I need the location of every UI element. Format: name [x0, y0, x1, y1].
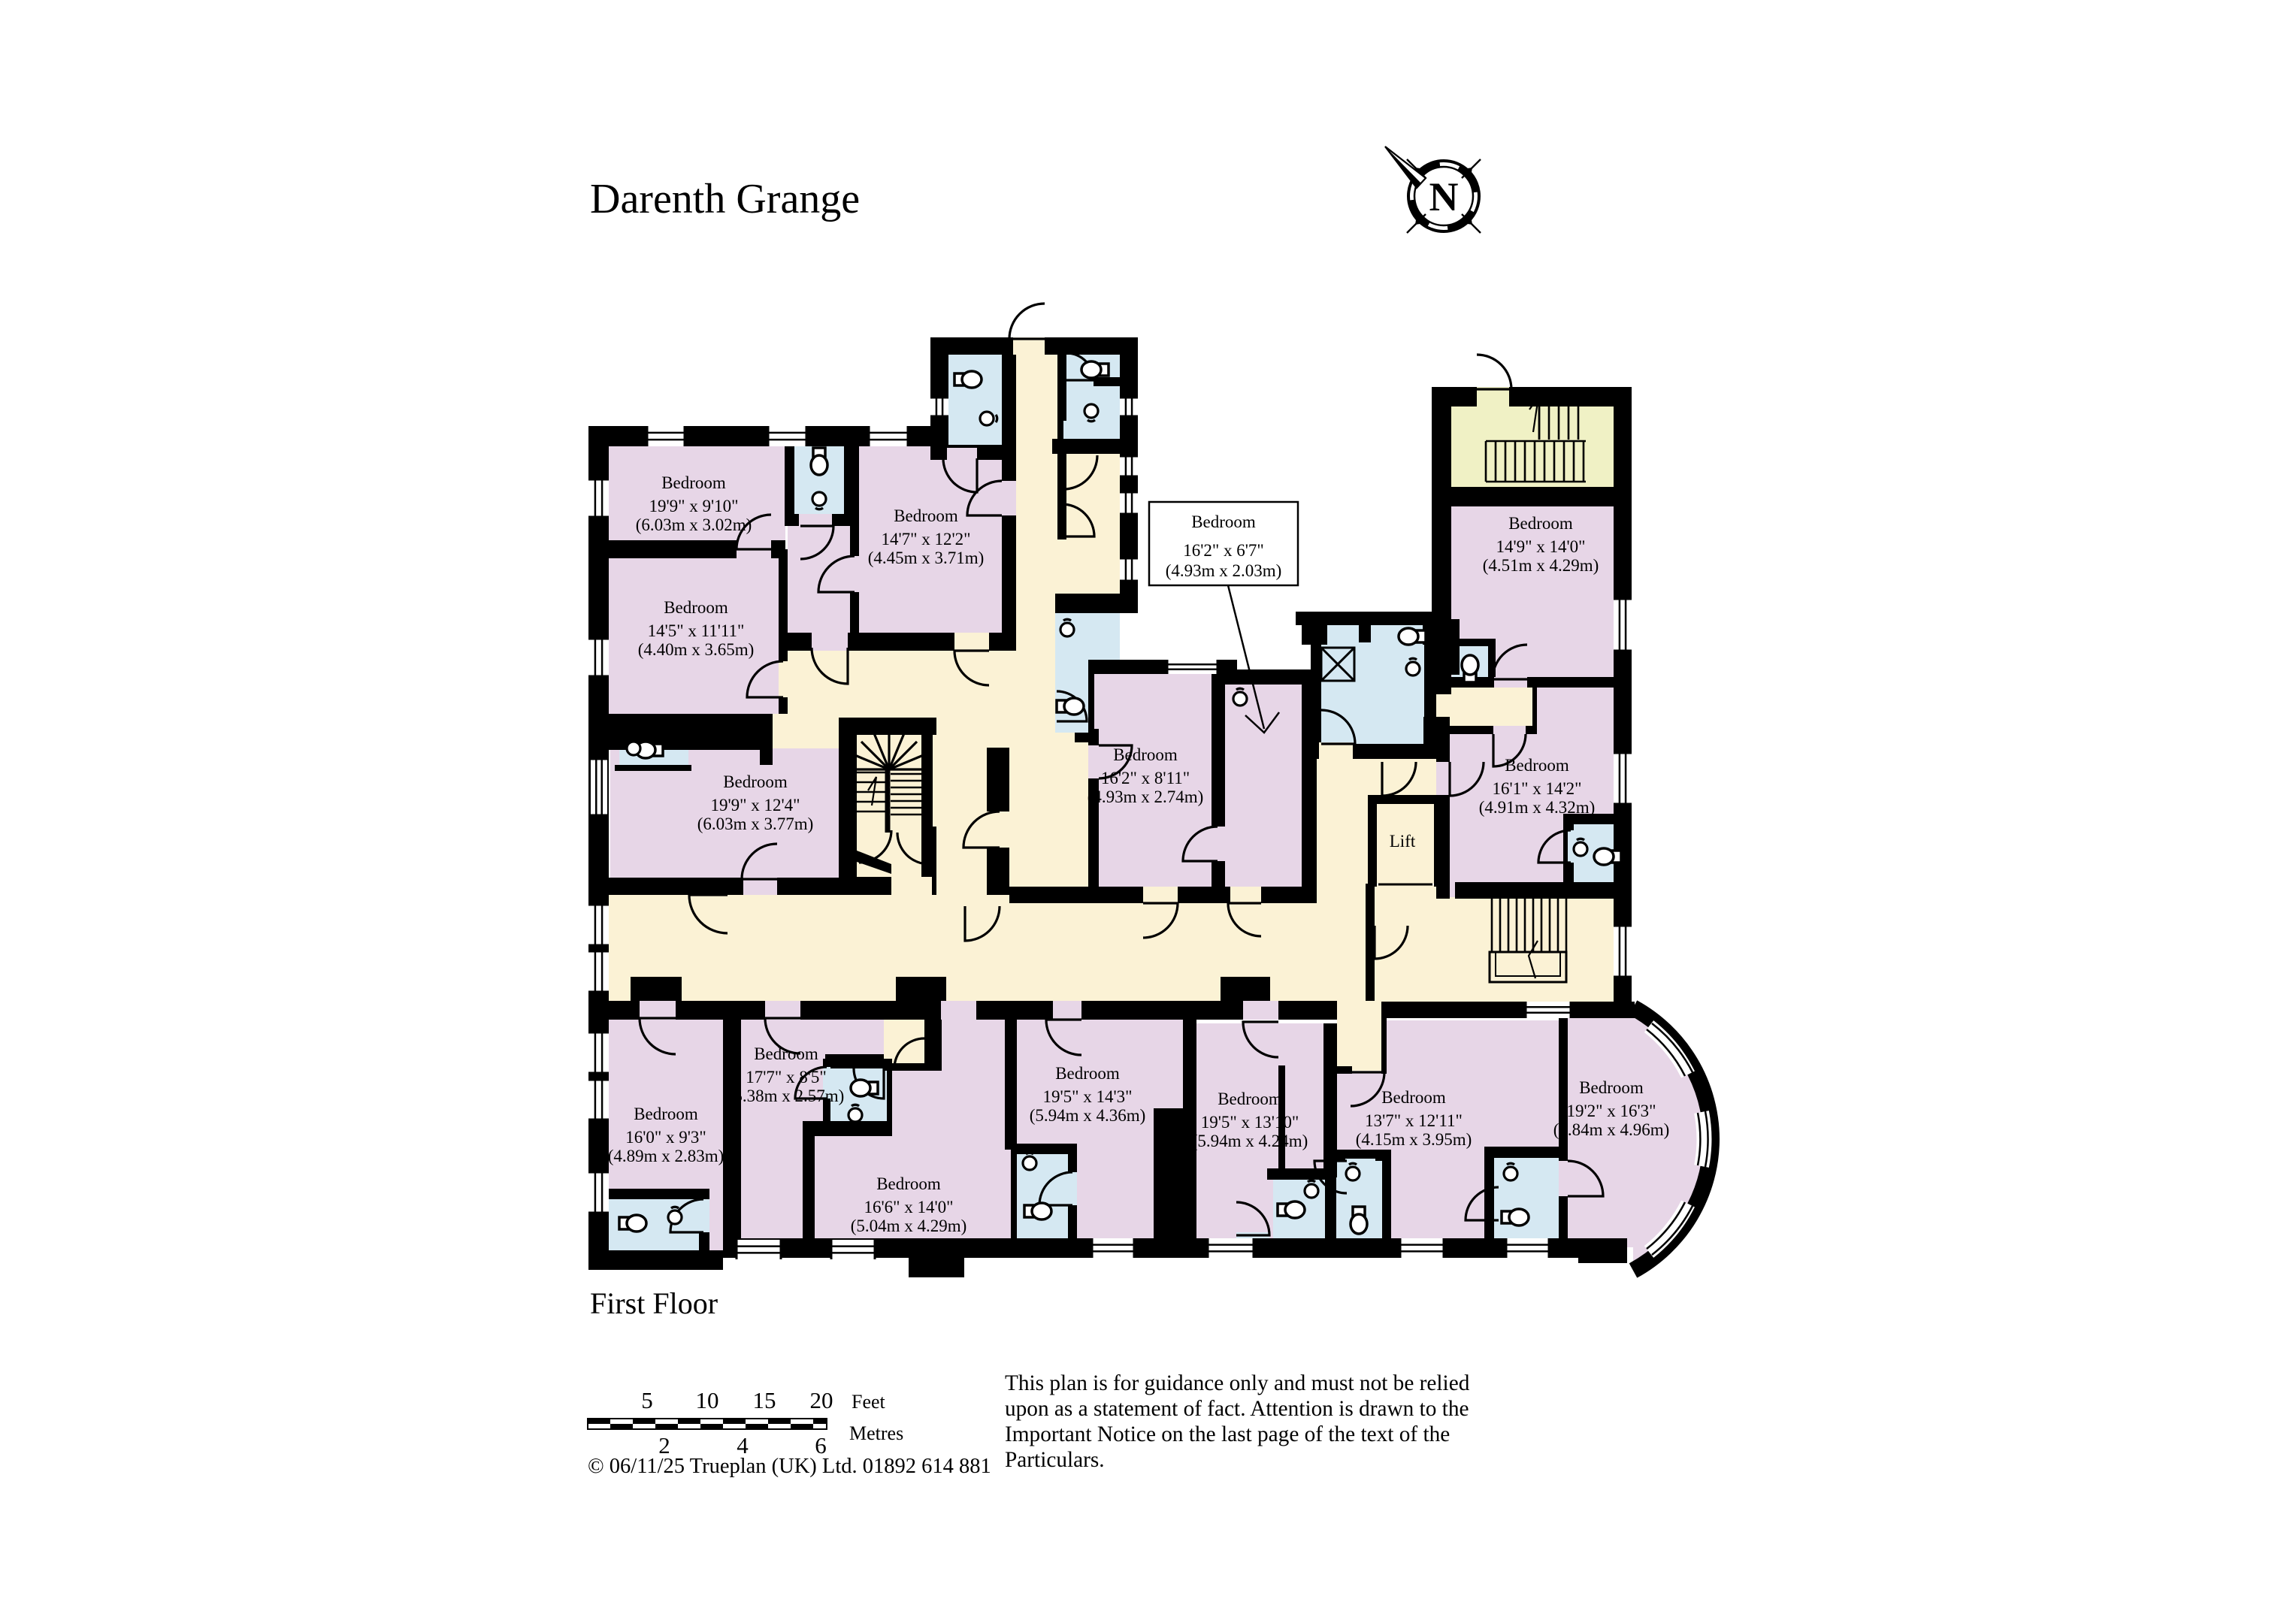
svg-text:(4.15m x 3.95m): (4.15m x 3.95m)	[1356, 1130, 1472, 1149]
svg-text:19'9" x 9'10": 19'9" x 9'10"	[649, 497, 738, 515]
svg-text:19'5" x 14'3": 19'5" x 14'3"	[1042, 1087, 1132, 1106]
svg-text:Bedroom: Bedroom	[1579, 1078, 1644, 1097]
svg-text:(6.03m x 3.02m): (6.03m x 3.02m)	[636, 515, 752, 534]
svg-text:N: N	[1429, 174, 1459, 219]
svg-text:(5.38m x 2.57m): (5.38m x 2.57m)	[728, 1087, 845, 1105]
svg-text:Bedroom: Bedroom	[894, 506, 958, 525]
svg-text:16'1" x 14'2": 16'1" x 14'2"	[1492, 779, 1581, 798]
svg-text:16'0" x 9'3": 16'0" x 9'3"	[625, 1128, 706, 1147]
svg-text:(4.93m x 2.74m): (4.93m x 2.74m)	[1087, 787, 1204, 806]
svg-text:Bedroom: Bedroom	[1113, 745, 1178, 764]
svg-text:Bedroom: Bedroom	[1055, 1064, 1120, 1083]
svg-text:(4.51m x 4.29m): (4.51m x 4.29m)	[1483, 556, 1599, 575]
svg-text:17'7" x 8'5": 17'7" x 8'5"	[746, 1068, 827, 1087]
svg-text:Bedroom: Bedroom	[664, 598, 728, 617]
svg-text:Important Notice on the last p: Important Notice on the last page of the…	[1005, 1422, 1450, 1446]
svg-text:(4.91m x 4.32m): (4.91m x 4.32m)	[1479, 798, 1596, 817]
svg-text:© 06/11/25 Trueplan (UK) Lt: © 06/11/25 Trueplan (UK) Ltd. 01892 614 …	[588, 1455, 991, 1478]
svg-text:20: 20	[810, 1387, 833, 1413]
svg-text:Bedroom: Bedroom	[1218, 1090, 1282, 1108]
svg-text:Bedroom: Bedroom	[661, 473, 726, 492]
svg-text:14'7" x 12'2": 14'7" x 12'2"	[881, 530, 970, 549]
svg-text:Feet: Feet	[852, 1391, 886, 1413]
svg-text:13'7" x 12'11": 13'7" x 12'11"	[1365, 1111, 1463, 1130]
svg-text:This plan is for guidance only: This plan is for guidance only and must …	[1005, 1371, 1470, 1395]
svg-text:Particulars.: Particulars.	[1005, 1448, 1105, 1472]
svg-text:14'5" x 11'11": 14'5" x 11'11"	[648, 621, 745, 640]
svg-text:5: 5	[641, 1387, 653, 1413]
svg-text:(4.45m x 3.71m): (4.45m x 3.71m)	[868, 549, 985, 567]
svg-text:Lift: Lift	[1390, 832, 1416, 851]
svg-text:19'5" x 13'10": 19'5" x 13'10"	[1201, 1113, 1299, 1132]
svg-text:Bedroom: Bedroom	[1505, 756, 1569, 775]
svg-text:(5.94m x 4.24m): (5.94m x 4.24m)	[1192, 1132, 1308, 1150]
svg-text:Bedroom: Bedroom	[1191, 512, 1256, 531]
svg-text:16'2" x 6'7": 16'2" x 6'7"	[1183, 541, 1264, 560]
svg-text:Bedroom: Bedroom	[1381, 1088, 1446, 1107]
svg-text:Bedroom: Bedroom	[723, 772, 788, 791]
svg-text:(6.03m x 3.77m): (6.03m x 3.77m)	[697, 815, 814, 833]
svg-text:(4.93m x 2.03m): (4.93m x 2.03m)	[1166, 561, 1282, 580]
svg-text:10: 10	[696, 1387, 719, 1413]
svg-text:(4.89m x 2.83m): (4.89m x 2.83m)	[608, 1147, 724, 1165]
svg-text:Bedroom: Bedroom	[876, 1174, 941, 1193]
svg-text:19'9" x 12'4": 19'9" x 12'4"	[710, 796, 800, 815]
svg-text:(4.40m x 3.65m): (4.40m x 3.65m)	[638, 640, 755, 659]
svg-text:14'9" x 14'0": 14'9" x 14'0"	[1496, 537, 1585, 556]
svg-text:(5.94m x 4.36m): (5.94m x 4.36m)	[1030, 1106, 1146, 1125]
svg-text:Bedroom: Bedroom	[1508, 514, 1573, 533]
svg-text:First Floor: First Floor	[590, 1286, 718, 1320]
svg-text:(5.04m x 4.29m): (5.04m x 4.29m)	[851, 1216, 967, 1235]
svg-text:Darenth Grange: Darenth Grange	[590, 176, 860, 222]
svg-text:Metres: Metres	[849, 1422, 903, 1444]
svg-text:15: 15	[753, 1387, 776, 1413]
svg-text:16'6" x 14'0": 16'6" x 14'0"	[864, 1198, 953, 1216]
svg-text:19'2" x 16'3": 19'2" x 16'3"	[1566, 1102, 1656, 1120]
svg-text:(5.84m x 4.96m): (5.84m x 4.96m)	[1553, 1120, 1670, 1139]
svg-text:Bedroom: Bedroom	[754, 1044, 818, 1063]
svg-text:16'2" x 8'11": 16'2" x 8'11"	[1101, 769, 1190, 787]
svg-text:upon as a statement of fact. A: upon as a statement of fact. Attention i…	[1005, 1397, 1469, 1421]
svg-text:Bedroom: Bedroom	[634, 1105, 698, 1123]
